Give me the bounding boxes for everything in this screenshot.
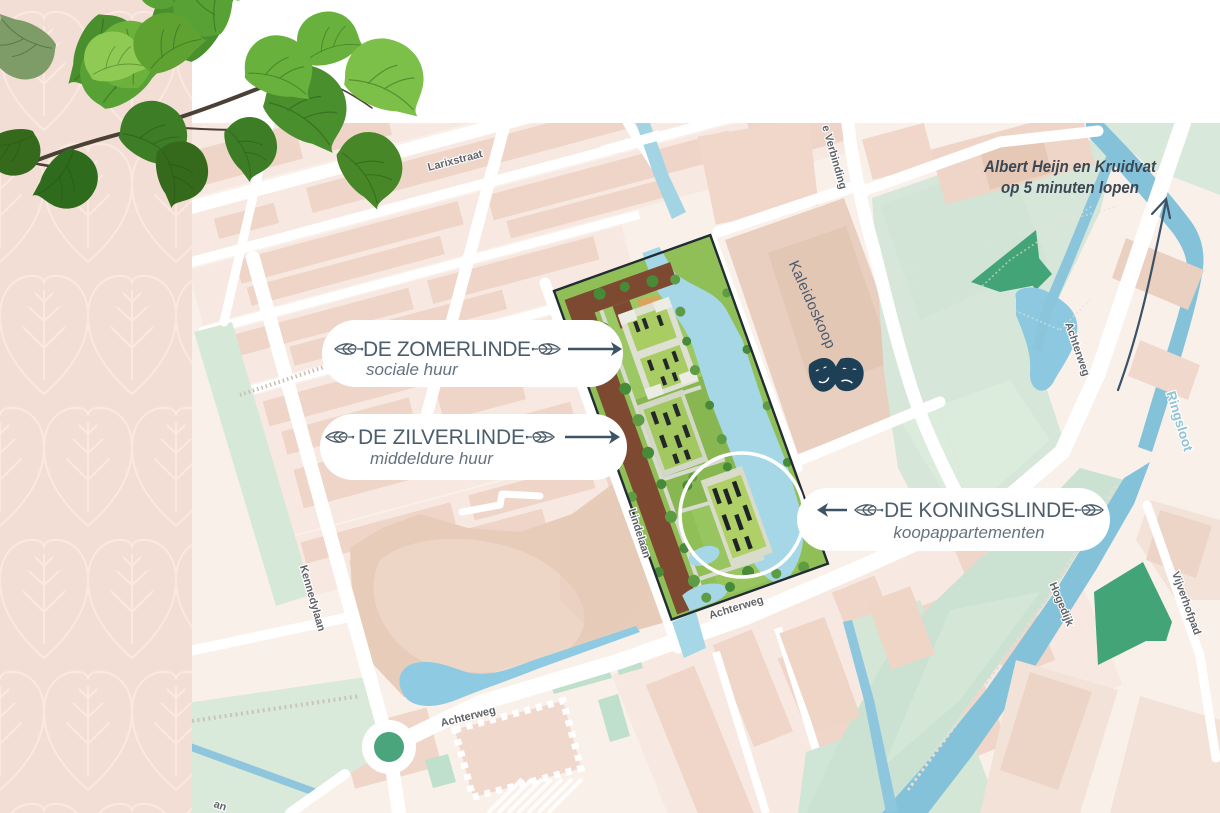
svg-text:DE KONINGSLINDE: DE KONINGSLINDE: [884, 499, 1075, 522]
svg-text:op 5 minuten lopen: op 5 minuten lopen: [1001, 179, 1139, 197]
svg-text:DE ZOMERLINDE: DE ZOMERLINDE: [363, 338, 531, 361]
svg-text:sociale huur: sociale huur: [366, 360, 459, 379]
svg-text:DE ZILVERLINDE: DE ZILVERLINDE: [358, 426, 525, 449]
svg-text:koopappartementen: koopappartementen: [893, 523, 1044, 542]
svg-text:middeldure huur: middeldure huur: [370, 449, 494, 468]
svg-text:Albert Heijn en Kruidvat: Albert Heijn en Kruidvat: [983, 158, 1157, 176]
